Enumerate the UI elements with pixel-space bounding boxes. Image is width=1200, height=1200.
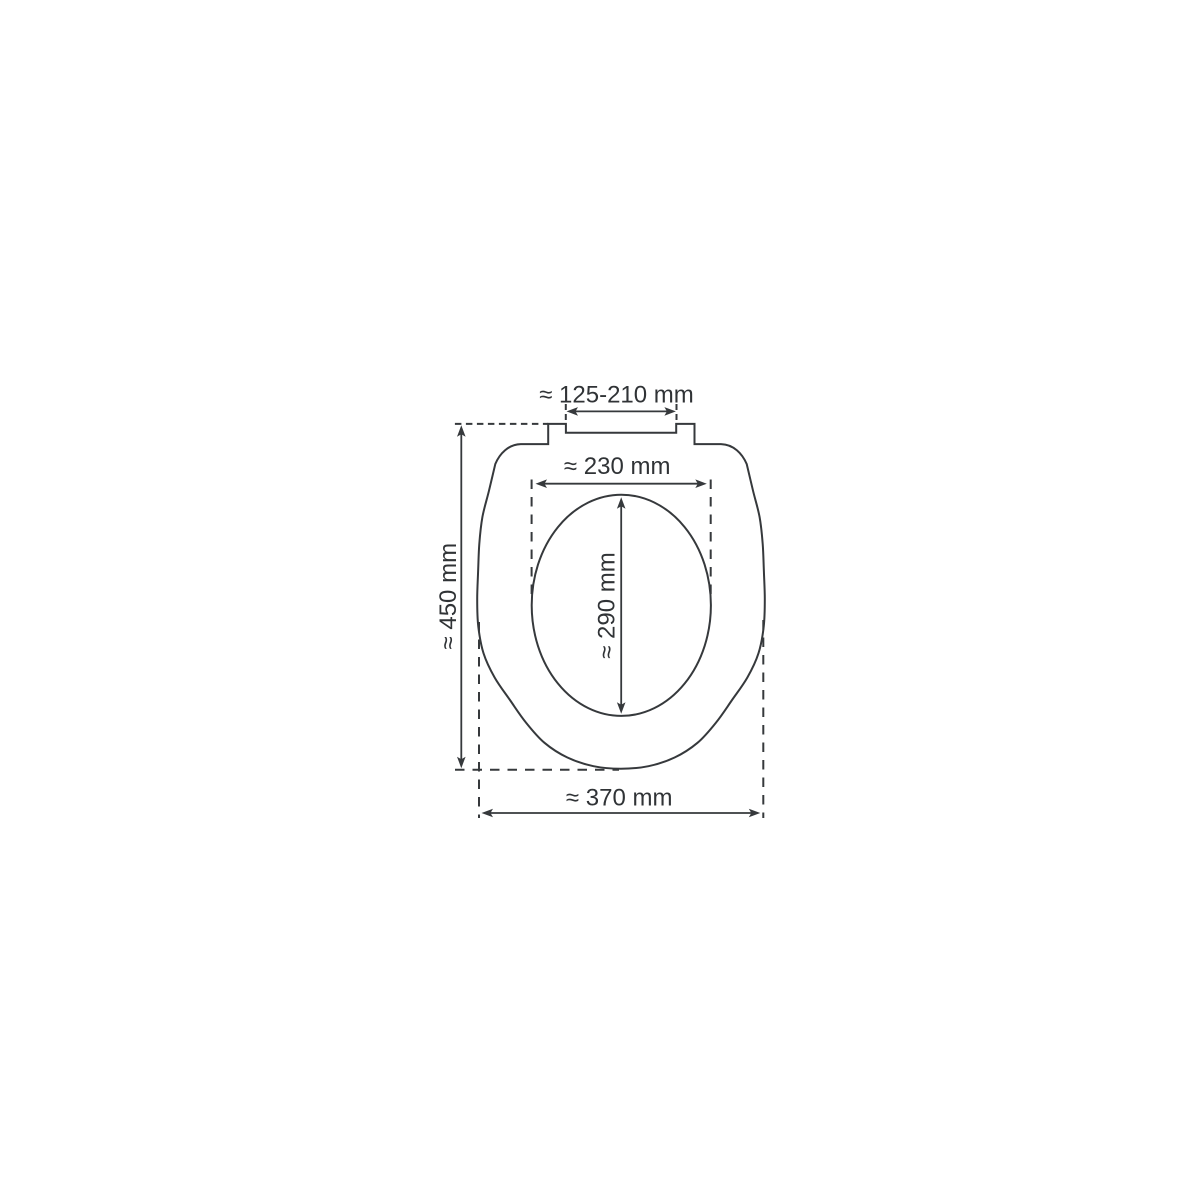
svg-text:≈ 370 mm: ≈ 370 mm xyxy=(566,785,673,812)
svg-text:≈ 450 mm: ≈ 450 mm xyxy=(435,543,462,650)
svg-text:≈ 230 mm: ≈ 230 mm xyxy=(564,453,671,480)
svg-text:≈ 290 mm: ≈ 290 mm xyxy=(594,552,621,659)
svg-text:≈ 125-210 mm: ≈ 125-210 mm xyxy=(539,382,694,409)
